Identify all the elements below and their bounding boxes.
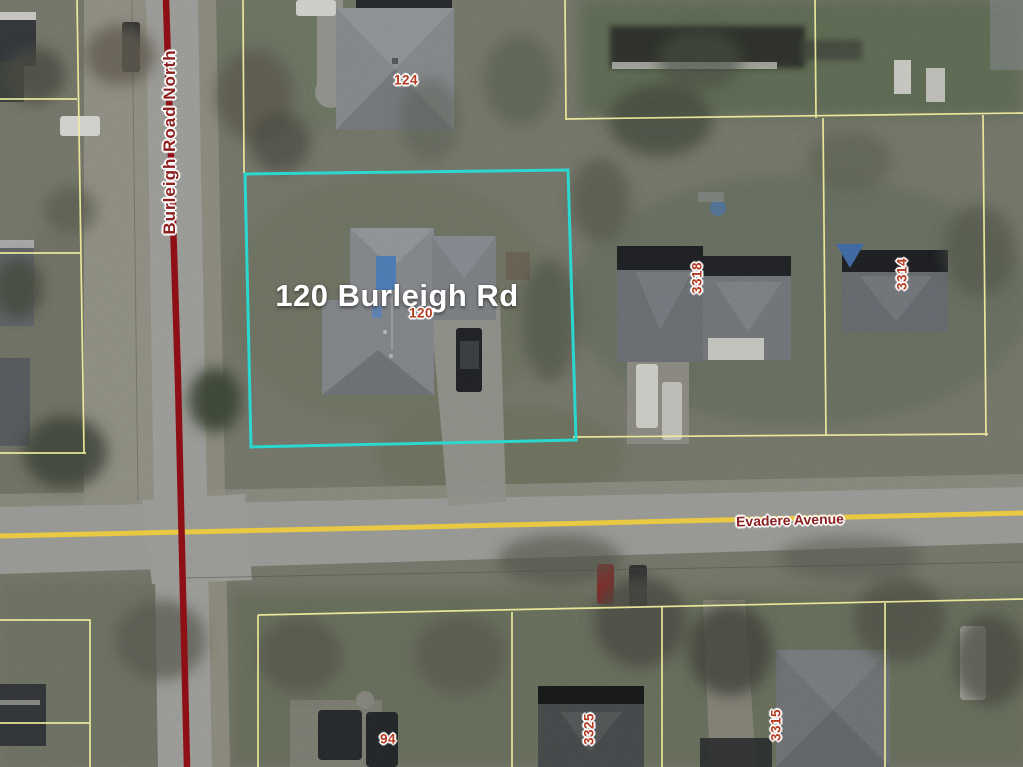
aerial-photo-layer bbox=[0, 0, 1023, 767]
aerial-map-canvas[interactable]: Burleigh Road North 120 Burleigh Rd 120 … bbox=[0, 0, 1023, 767]
